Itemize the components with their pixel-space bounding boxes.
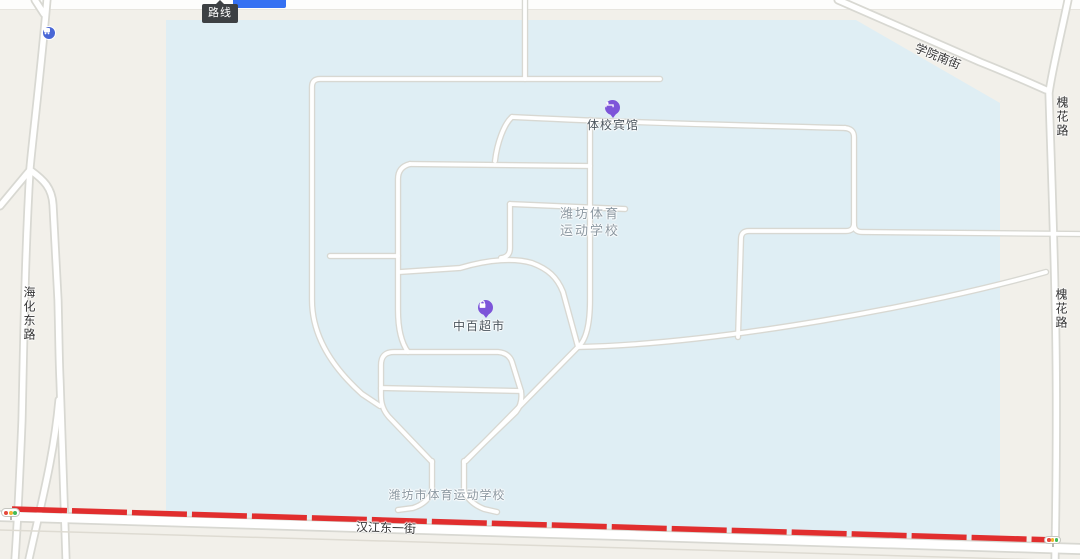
traffic-light-yellow-dot [9, 511, 13, 515]
hotel-poi-marker[interactable] [605, 100, 620, 115]
traffic-light-green-dot [13, 511, 17, 515]
traffic-light-red-dot [4, 511, 8, 515]
campus-road-mid-h [410, 164, 590, 166]
bus-stop-icon[interactable] [42, 26, 56, 40]
traffic-light-icon [1, 508, 20, 517]
campus-area [166, 20, 1000, 540]
traffic-light-icon [1044, 536, 1061, 544]
map-canvas[interactable]: 体校宾馆 中百超市 潍坊体育 运动学校 潍坊市体育运动学校 汉江东一街 海化东路… [0, 0, 1080, 559]
supermarket-poi-marker[interactable] [478, 300, 493, 315]
route-button-partial[interactable] [233, 0, 286, 8]
map-tiles-layer [0, 0, 1080, 559]
bus-icon [43, 27, 51, 35]
top-road-band [0, 0, 1080, 9]
shopping-bag-icon [478, 300, 487, 309]
bed-icon [605, 100, 614, 109]
traffic-light-red-dot [1047, 538, 1051, 542]
traffic-light-yellow-dot [1051, 538, 1055, 542]
traffic-light-green-dot [1055, 538, 1059, 542]
route-tooltip: 路线 [202, 4, 238, 23]
